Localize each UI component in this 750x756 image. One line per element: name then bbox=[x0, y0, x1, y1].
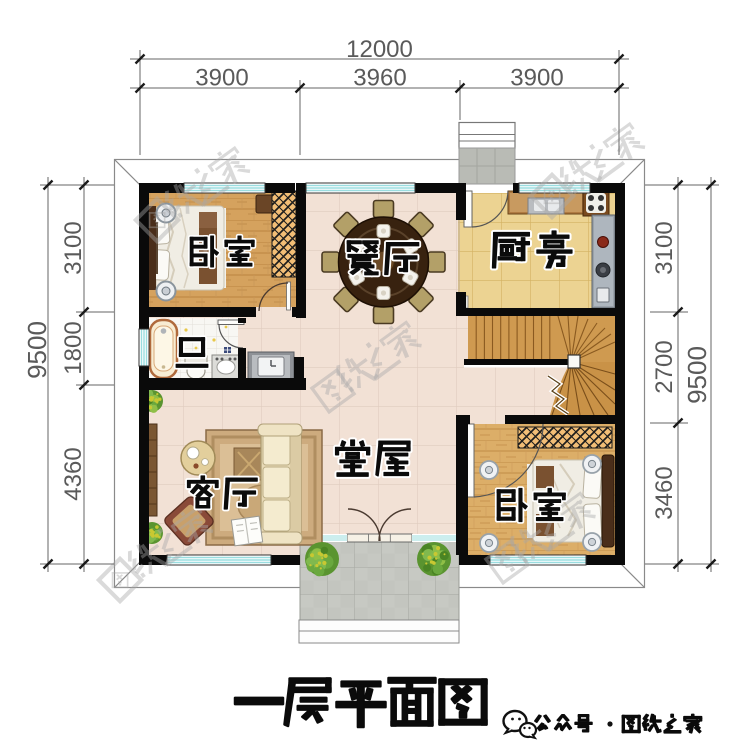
svg-text:3460: 3460 bbox=[651, 466, 678, 519]
svg-text:9500: 9500 bbox=[682, 346, 712, 404]
svg-text:3960: 3960 bbox=[353, 65, 406, 92]
svg-text:12000: 12000 bbox=[346, 36, 413, 63]
svg-text:9500: 9500 bbox=[22, 321, 52, 379]
svg-text:3100: 3100 bbox=[651, 221, 678, 274]
svg-text:2700: 2700 bbox=[651, 340, 678, 393]
svg-text:3100: 3100 bbox=[60, 221, 87, 274]
svg-text:3900: 3900 bbox=[195, 65, 248, 92]
svg-text:4360: 4360 bbox=[60, 447, 87, 500]
svg-text:3900: 3900 bbox=[510, 65, 563, 92]
svg-text:1800: 1800 bbox=[60, 321, 87, 374]
